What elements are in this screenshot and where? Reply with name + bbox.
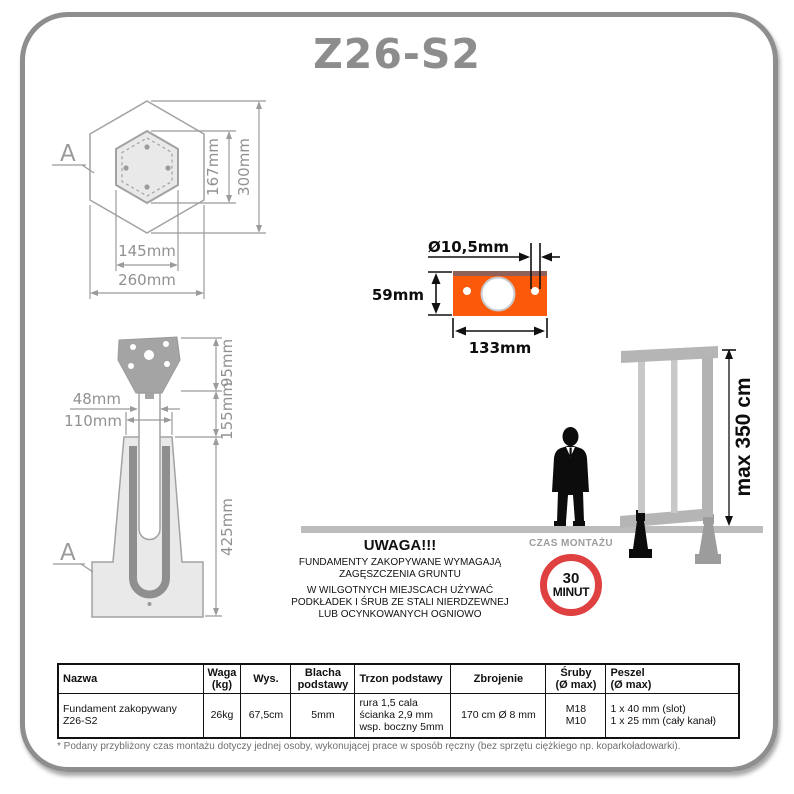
plate-hole — [128, 363, 134, 369]
dim-head-height: 95mm — [218, 339, 236, 387]
frame-post — [671, 360, 678, 513]
section-label-a: A — [60, 141, 76, 167]
cell-zbrojenie: 170 cm Ø 8 mm — [451, 694, 546, 738]
cell-blacha: 5mm — [291, 694, 355, 738]
cell-waga: 26kg — [203, 694, 241, 738]
frame-post — [638, 360, 645, 513]
plate-hole — [163, 341, 169, 347]
plate-center-hole — [144, 350, 154, 360]
dim-sleeve-width: 110mm — [64, 412, 122, 430]
ground-line — [301, 526, 763, 533]
rebar-dot — [165, 165, 170, 170]
warning-line: LUB OCYNKOWANYCH OGNIOWO — [283, 609, 517, 621]
cell-nazwa: Fundament zakopywanyZ26-S2 — [58, 694, 203, 738]
frame-bottom-bar — [620, 508, 713, 528]
head-plate — [118, 337, 180, 393]
plate-center-hole — [482, 278, 515, 311]
tie — [570, 448, 572, 457]
col-header-zbrojenie: Zbrojenie — [451, 664, 546, 694]
plate-bolt-hole — [463, 287, 471, 295]
spec-sheet: Z26-S2 A 167mm — [0, 0, 794, 794]
plate-bolt-hole — [531, 287, 539, 295]
col-header-blacha: Blachapodstawy — [291, 664, 355, 694]
rebar-dot — [123, 165, 128, 170]
plate-hole — [164, 361, 170, 367]
warning-line: FUNDAMENTY ZAKOPYWANE WYMAGAJĄ — [283, 557, 517, 569]
footnote: * Podany przybliżony czas montażu dotycz… — [57, 741, 747, 752]
plate-hole — [130, 344, 136, 350]
frame-post — [702, 357, 713, 517]
col-header-peszel: Peszel(Ø max) — [606, 664, 739, 694]
foundation-anchor-gray — [695, 514, 721, 564]
dim-plate-width: 133mm — [469, 339, 532, 357]
col-header-waga: Waga(kg) — [203, 664, 241, 694]
dim-depth: 425mm — [218, 498, 236, 556]
side-section-diagram: A 48mm 110mm 95mm — [53, 337, 236, 617]
warning-title: UWAGA!!! — [283, 537, 517, 554]
dim-plate-height: 59mm — [372, 286, 424, 304]
base-plate-diagram: Ø10,5mm 59mm 133mm — [372, 238, 560, 357]
warning-line: W WILGOTNYCH MIEJSCACH UŻYWAĆ — [283, 585, 517, 597]
col-header-trzon: Trzon podstawy — [355, 664, 451, 694]
dim-tube-width: 48mm — [73, 390, 121, 408]
cell-trzon: rura 1,5 calaścianka 2,9 mmwsp. boczny 5… — [355, 694, 451, 738]
warning-line: ZAGĘSZCZENIA GRUNTU — [283, 569, 517, 581]
assembly-time-value: 30 — [563, 571, 580, 586]
dim-inner-height: 167mm — [204, 138, 222, 196]
dim-outer-width: 260mm — [118, 271, 176, 289]
warning-line: PODKŁADEK I ŚRUB ZE STALI NIERDZEWNEJ — [283, 597, 517, 609]
rebar-dot — [144, 144, 149, 149]
section-label-a: A — [60, 540, 76, 566]
assembly-time-unit: MINUT — [553, 586, 590, 599]
col-header-nazwa: Nazwa — [58, 664, 203, 694]
cell-sruby: M18M10 — [546, 694, 606, 738]
table-header-row: Nazwa Waga(kg) Wys. Blachapodstawy Trzon… — [58, 664, 739, 694]
hex-cross-section-diagram: A 167mm 300mm 145mm — [52, 101, 266, 299]
person-silhouette — [552, 427, 589, 526]
dim-inner-width: 145mm — [118, 242, 176, 260]
cell-wys: 67,5cm — [241, 694, 291, 738]
dim-outer-height: 300mm — [235, 138, 253, 196]
base-plate-top-edge — [453, 271, 547, 276]
spec-table: Nazwa Waga(kg) Wys. Blachapodstawy Trzon… — [57, 663, 740, 739]
table-row: Fundament zakopywanyZ26-S2 26kg 67,5cm 5… — [58, 694, 739, 738]
warning-block: UWAGA!!! FUNDAMENTY ZAKOPYWANE WYMAGAJĄ … — [283, 537, 517, 621]
installation-scene: max 350 cm — [301, 346, 763, 564]
dim-max-height: max 350 cm — [732, 377, 755, 496]
head-plate-tab — [145, 393, 154, 399]
cell-peszel: 1 x 40 mm (slot)1 x 25 mm (cały kanał) — [606, 694, 739, 738]
assembly-time-label: CZAS MONTAŻU — [524, 538, 618, 549]
rebar-dot — [144, 184, 149, 189]
col-header-sruby: Śruby(Ø max) — [546, 664, 606, 694]
assembly-time-badge: 30 MINUT — [540, 554, 602, 616]
dim-above-ground: 155mm — [218, 382, 236, 440]
post-tube — [139, 393, 160, 540]
dim-hole-diameter: Ø10,5mm — [428, 238, 509, 256]
col-header-wys: Wys. — [241, 664, 291, 694]
